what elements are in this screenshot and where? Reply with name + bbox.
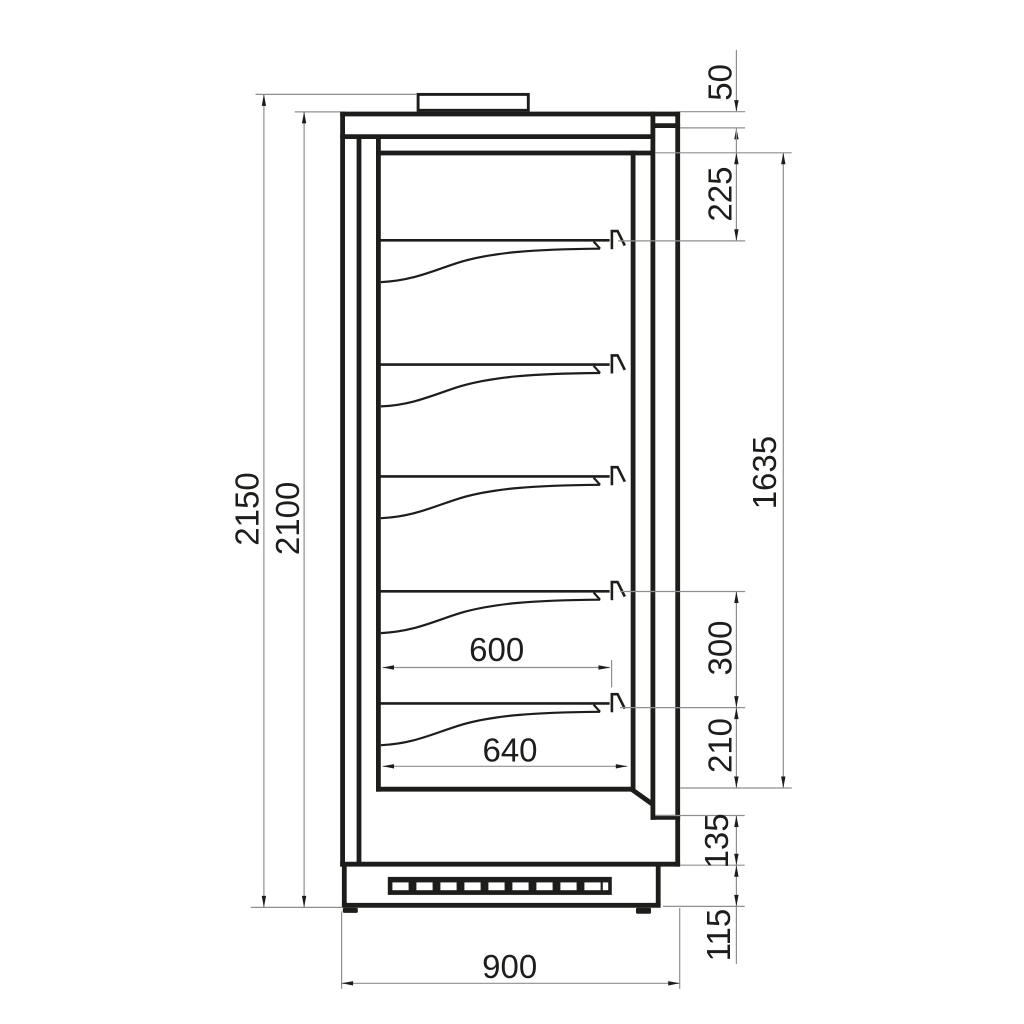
svg-text:1635: 1635 [746, 436, 783, 509]
svg-text:135: 135 [698, 813, 735, 868]
svg-text:640: 640 [482, 732, 537, 769]
svg-text:600: 600 [469, 631, 524, 668]
svg-text:2150: 2150 [229, 472, 266, 545]
svg-text:210: 210 [701, 718, 738, 773]
svg-text:2100: 2100 [269, 482, 306, 555]
svg-text:225: 225 [701, 167, 738, 222]
svg-text:300: 300 [701, 620, 738, 675]
svg-text:115: 115 [700, 909, 737, 962]
svg-text:50: 50 [702, 64, 739, 101]
svg-text:900: 900 [482, 948, 537, 985]
